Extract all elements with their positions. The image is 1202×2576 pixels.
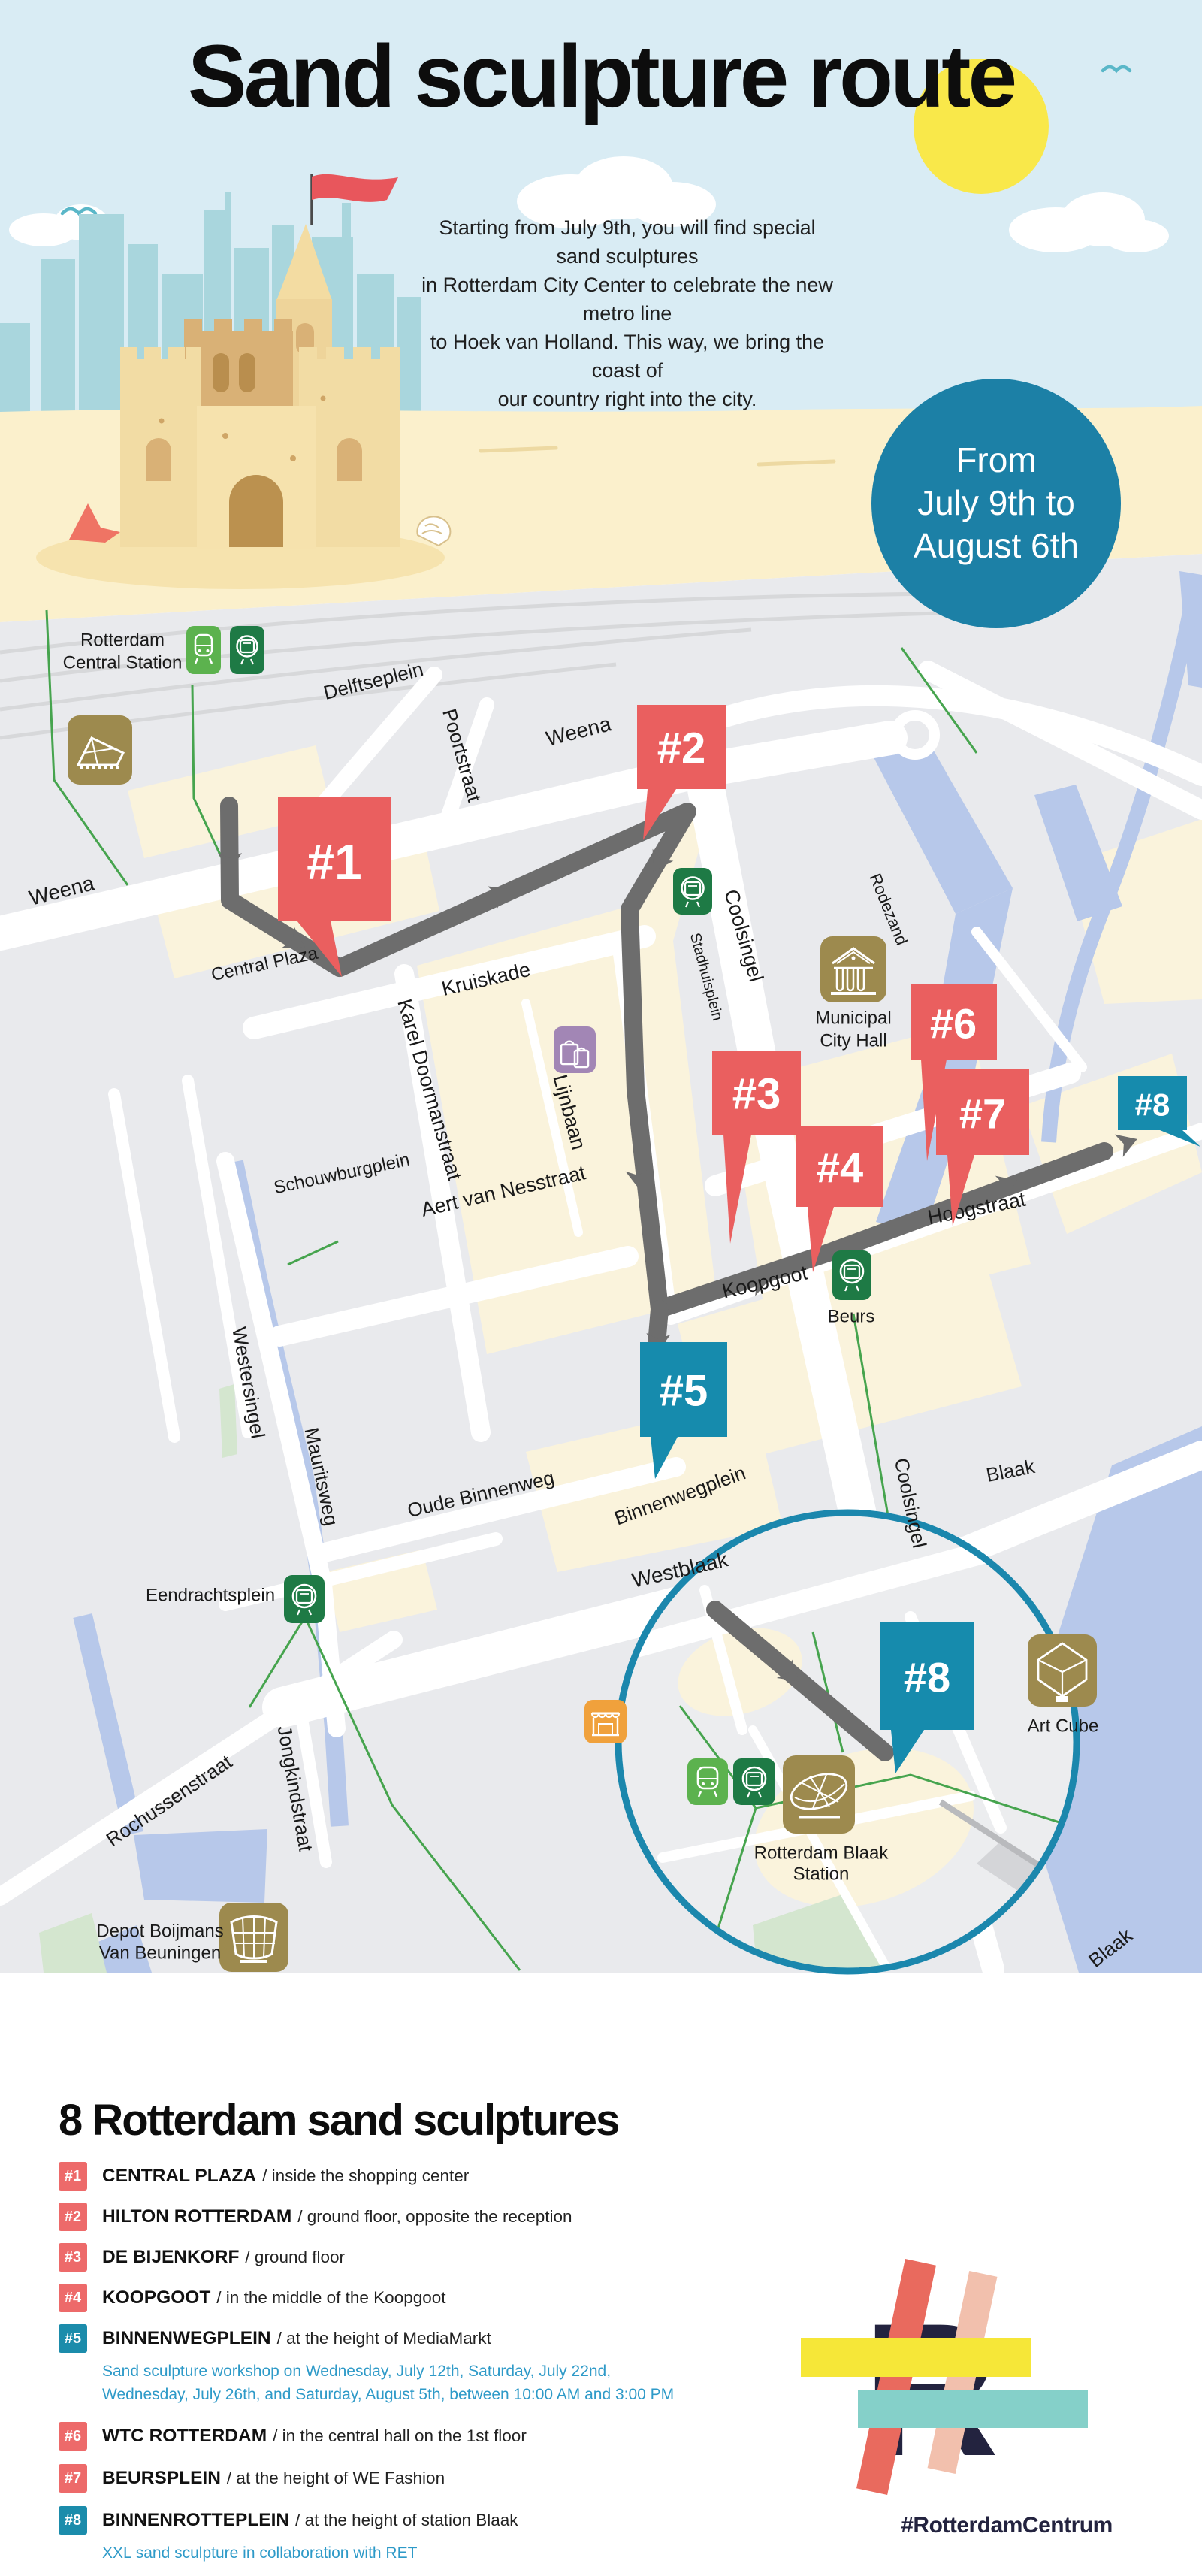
legend-desc-8: / at the height of station Blaak <box>295 2511 518 2530</box>
train-icon <box>186 626 221 674</box>
shopping-bags-icon <box>554 1026 596 1073</box>
train-icon-blaak <box>687 1758 728 1805</box>
metro-icon-beurs <box>832 1250 871 1300</box>
marker-1-label: #1 <box>307 834 361 890</box>
intro-line: in Rotterdam City Center to celebrate th… <box>417 271 838 328</box>
rotterdam-centrum-logo: R <box>801 2259 1088 2496</box>
label-beurs: Beurs <box>828 1307 875 1327</box>
marker-6-label: #6 <box>930 1000 977 1048</box>
legend-desc-1: / inside the shopping center <box>262 2166 469 2186</box>
marker-2-label: #2 <box>657 724 706 773</box>
legend-item-2: #2 HILTON ROTTERDAM / ground floor, oppo… <box>59 2203 572 2231</box>
legend-desc-3: / ground floor <box>245 2248 345 2267</box>
label-central-station: Central Station <box>63 653 183 673</box>
label-art-cube: Art Cube <box>1028 1716 1099 1737</box>
label-eendrachtsplein: Eendrachtsplein <box>146 1586 275 1606</box>
legend-item-1: #1 CENTRAL PLAZA / inside the shopping c… <box>59 2162 469 2191</box>
date-badge: From July 9th to August 6th <box>871 379 1121 628</box>
legend-name-2: HILTON ROTTERDAM <box>102 2206 291 2227</box>
date-badge-line: August 6th <box>871 525 1121 567</box>
market-stall-icon <box>584 1700 627 1743</box>
legend-item-8: #8 BINNENROTTEPLEIN / at the height of s… <box>59 2506 518 2535</box>
legend-name-1: CENTRAL PLAZA <box>102 2166 256 2187</box>
metro-icon <box>230 626 264 674</box>
legend-desc-7: / at the height of WE Fashion <box>227 2469 445 2488</box>
legend-name-7: BEURSPLEIN <box>102 2468 221 2489</box>
legend-name-5: BINNENWEGPLEIN <box>102 2328 271 2349</box>
logo-teal-bar <box>858 2390 1088 2428</box>
art-cube-icon <box>1028 1634 1097 1707</box>
legend-badge-6: #6 <box>59 2422 87 2451</box>
legend-desc-2: / ground floor, opposite the reception <box>297 2207 572 2227</box>
legend-desc-5: / at the height of MediaMarkt <box>277 2329 491 2348</box>
legend-badge-3: #3 <box>59 2243 87 2272</box>
logo-yellow-bar <box>801 2338 1031 2377</box>
legend-badge-5: #5 <box>59 2324 87 2353</box>
marker-4-label: #4 <box>817 1144 863 1192</box>
legend-item-4: #4 KOOPGOOT / in the middle of the Koopg… <box>59 2284 446 2312</box>
legend-title: 8 Rotterdam sand sculptures <box>59 2095 618 2145</box>
intro-line: to Hoek van Holland. This way, we bring … <box>417 328 838 385</box>
label-municipal: Municipal <box>815 1008 891 1029</box>
intro-paragraph: Starting from July 9th, you will find sp… <box>417 213 838 413</box>
legend-badge-1: #1 <box>59 2162 87 2191</box>
legend-item-3: #3 DE BIJENKORF / ground floor <box>59 2243 345 2272</box>
intro-line: our country right into the city. <box>417 385 838 413</box>
legend-name-3: DE BIJENKORF <box>102 2247 239 2268</box>
label-van-beuningen: Van Beuningen <box>99 1943 221 1964</box>
label-rotterdam: Rotterdam <box>80 630 165 651</box>
label-city-hall: City Hall <box>820 1031 886 1051</box>
intro-line: Starting from July 9th, you will find sp… <box>417 213 838 271</box>
legend-name-8: BINNENROTTEPLEIN <box>102 2510 289 2531</box>
depot-boijmans-icon <box>219 1903 288 1972</box>
date-badge-line: July 9th to <box>871 482 1121 525</box>
legend-badge-8: #8 <box>59 2506 87 2535</box>
legend-badge-7: #7 <box>59 2464 87 2493</box>
blaak-station-icon <box>783 1755 855 1834</box>
poster: Rotterdam Central Station Delftseplein P… <box>0 0 1202 2576</box>
metro-icon-stadhuisplein <box>673 868 712 915</box>
label-depot-boijmans: Depot Boijmans <box>96 1921 223 1942</box>
marker-3-label: #3 <box>732 1070 781 1119</box>
legend-item-6: #6 WTC ROTTERDAM / in the central hall o… <box>59 2422 527 2451</box>
legend-badge-2: #2 <box>59 2203 87 2231</box>
label-station: Station <box>793 1864 850 1885</box>
marker-7-label: #7 <box>959 1090 1006 1138</box>
legend-note-5: Sand sculpture workshop on Wednesday, Ju… <box>102 2360 674 2406</box>
city-hall-icon <box>820 936 886 1002</box>
central-station-icon <box>68 715 132 785</box>
marker-5-label: #5 <box>660 1367 708 1416</box>
legend-name-6: WTC ROTTERDAM <box>102 2426 267 2447</box>
page-title: Sand sculpture route <box>0 26 1202 128</box>
marker-8-inset-label: #8 <box>904 1654 950 1701</box>
legend-note-8: XXL sand sculpture in collaboration with… <box>102 2541 417 2565</box>
legend-desc-6: / in the central hall on the 1st floor <box>273 2426 527 2446</box>
metro-icon-blaak <box>733 1758 775 1805</box>
metro-icon-eendrachtsplein <box>284 1575 325 1623</box>
legend-item-7: #7 BEURSPLEIN / at the height of WE Fash… <box>59 2464 445 2493</box>
hashtag-text: #RotterdamCentrum <box>826 2513 1187 2538</box>
date-badge-line: From <box>871 439 1121 482</box>
label-rotterdam-blaak: Rotterdam Blaak <box>754 1843 889 1864</box>
legend-desc-4: / in the middle of the Koopgoot <box>216 2288 445 2308</box>
marker-8-small-label: #8 <box>1135 1087 1170 1123</box>
legend-item-5: #5 BINNENWEGPLEIN / at the height of Med… <box>59 2324 491 2353</box>
legend-badge-4: #4 <box>59 2284 87 2312</box>
legend-name-4: KOOPGOOT <box>102 2287 210 2308</box>
